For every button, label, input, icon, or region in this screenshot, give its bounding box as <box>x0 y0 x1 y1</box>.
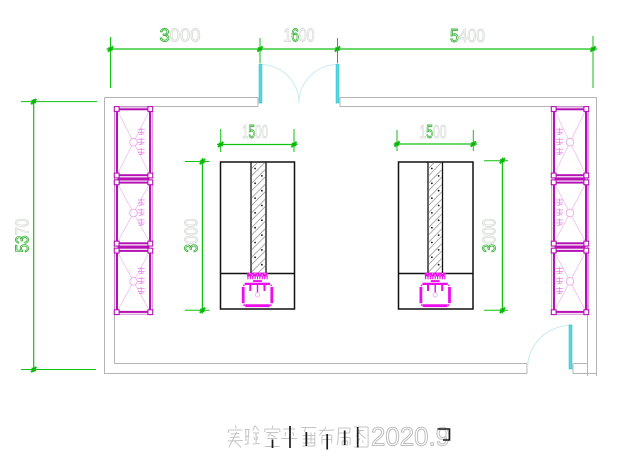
svg-text:3000: 3000 <box>182 219 202 253</box>
svg-text:3000: 3000 <box>480 219 500 253</box>
svg-text:1500: 1500 <box>242 122 268 142</box>
svg-text:2020.9: 2020.9 <box>371 422 450 452</box>
svg-text:5370: 5370 <box>12 219 32 253</box>
svg-text:3000: 3000 <box>160 26 201 46</box>
svg-text:1500: 1500 <box>420 122 447 142</box>
svg-text:1600: 1600 <box>284 26 315 46</box>
svg-text:5400: 5400 <box>450 26 485 46</box>
